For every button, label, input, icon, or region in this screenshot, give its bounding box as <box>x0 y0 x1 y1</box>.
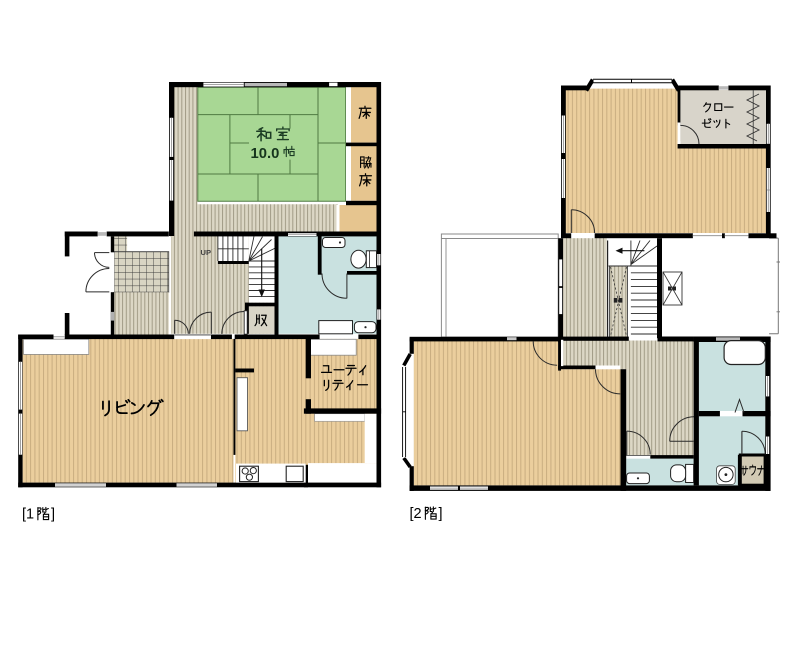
svg-text:[1: [1 <box>22 507 34 523</box>
svg-text:UP: UP <box>201 248 212 257</box>
svg-text:10.0: 10.0 <box>251 146 280 162</box>
svg-text:]: ] <box>439 506 443 522</box>
svg-text:[2: [2 <box>410 506 422 522</box>
svg-text:]: ] <box>51 507 55 523</box>
